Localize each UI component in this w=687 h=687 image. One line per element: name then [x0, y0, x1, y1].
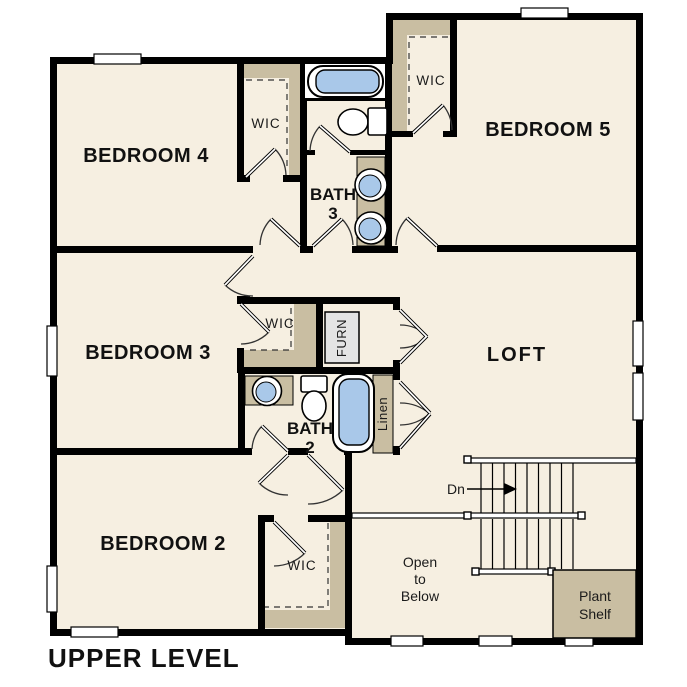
wall — [240, 367, 400, 374]
stair-rail-top — [467, 458, 636, 463]
closet-label-wic-bedroom5: WIC — [416, 73, 445, 88]
closet-label-wic-bedroom3: WIC — [265, 316, 294, 331]
wall — [308, 515, 345, 522]
wall — [237, 348, 244, 373]
closet-label-wic-bedroom2: WIC — [287, 558, 316, 573]
toilet-icon — [301, 376, 327, 421]
room-label-bedroom3: BEDROOM 3 — [85, 342, 211, 364]
open-to-below-line1: Open — [403, 554, 437, 570]
wic2-shelf-bottom — [258, 610, 345, 628]
rail-post — [464, 456, 471, 463]
rail-post — [464, 512, 471, 519]
closet-label-furnace: FURN — [334, 319, 349, 357]
wall — [50, 448, 240, 455]
wall — [450, 13, 457, 137]
wall — [437, 245, 636, 252]
wall — [50, 246, 253, 253]
window — [47, 566, 57, 612]
wall — [350, 150, 392, 155]
sink-icon — [355, 212, 387, 244]
window — [479, 636, 512, 646]
wic5-shelf-left — [392, 20, 407, 131]
wall — [393, 446, 400, 455]
room-label-bath3-line2: 3 — [328, 204, 337, 223]
wall — [258, 515, 274, 522]
plant-shelf — [553, 570, 636, 638]
window — [94, 54, 141, 64]
wall — [316, 303, 323, 373]
wall — [240, 448, 252, 455]
toilet-tank — [368, 108, 387, 135]
wall — [389, 131, 413, 137]
stairs-down-label: Dn — [447, 481, 465, 497]
sink-basin — [256, 382, 276, 402]
toilet-tank — [301, 376, 327, 392]
sink-icon — [253, 377, 282, 406]
stair-rail-bottom — [475, 569, 555, 574]
room-label-bedroom2: BEDROOM 2 — [100, 533, 226, 555]
closet-label-wic-bedroom4: WIC — [251, 116, 280, 131]
room-label-loft: LOFT — [487, 344, 547, 366]
wall — [258, 515, 265, 636]
sink-basin — [359, 218, 381, 240]
open-to-below-line3: Below — [401, 588, 440, 604]
wall — [386, 13, 393, 64]
rail-post — [578, 512, 585, 519]
window — [391, 636, 423, 646]
window — [47, 326, 57, 376]
window — [71, 627, 118, 637]
rail-post — [472, 568, 479, 575]
open-to-below-line2: to — [414, 571, 426, 587]
sink-icon — [355, 169, 387, 201]
room-label-bath3-line1: BATH — [310, 185, 356, 204]
wall — [393, 297, 400, 310]
bathtub-icon — [305, 64, 385, 98]
wall — [283, 175, 302, 182]
closet-label-linen: Linen — [375, 397, 390, 431]
wall — [345, 448, 352, 638]
floor-plan-page: BEDROOM 4 BEDROOM 5 BEDROOM 3 BEDROOM 2 … — [0, 0, 687, 687]
room-label-bedroom5: BEDROOM 5 — [485, 119, 611, 141]
window — [633, 321, 643, 366]
toilet-icon — [338, 108, 387, 135]
sink-basin — [359, 175, 381, 197]
wall — [386, 13, 643, 20]
wall — [244, 297, 400, 304]
window — [633, 373, 643, 420]
tub-basin — [316, 70, 379, 93]
wic4-shelf-right — [289, 64, 300, 175]
toilet-bowl — [302, 391, 326, 421]
tub-basin — [339, 379, 369, 445]
wall — [237, 57, 244, 182]
room-label-bath2-line1: BATH — [287, 419, 333, 438]
page-title: UPPER LEVEL — [48, 643, 240, 673]
wic3-shelf-bottom — [244, 350, 316, 367]
room-label-bedroom4: BEDROOM 4 — [83, 145, 209, 167]
window — [521, 8, 568, 18]
room-label-bath2-line2: 2 — [305, 438, 314, 457]
toilet-bowl — [338, 109, 368, 135]
floor-plan-drawing: BEDROOM 4 BEDROOM 5 BEDROOM 3 BEDROOM 2 … — [0, 0, 687, 687]
bathtub-icon — [333, 374, 374, 452]
plant-shelf-label-line1: Plant — [579, 588, 611, 604]
wall — [238, 373, 245, 455]
plant-shelf-label-line2: Shelf — [579, 606, 611, 622]
wall — [302, 150, 315, 155]
